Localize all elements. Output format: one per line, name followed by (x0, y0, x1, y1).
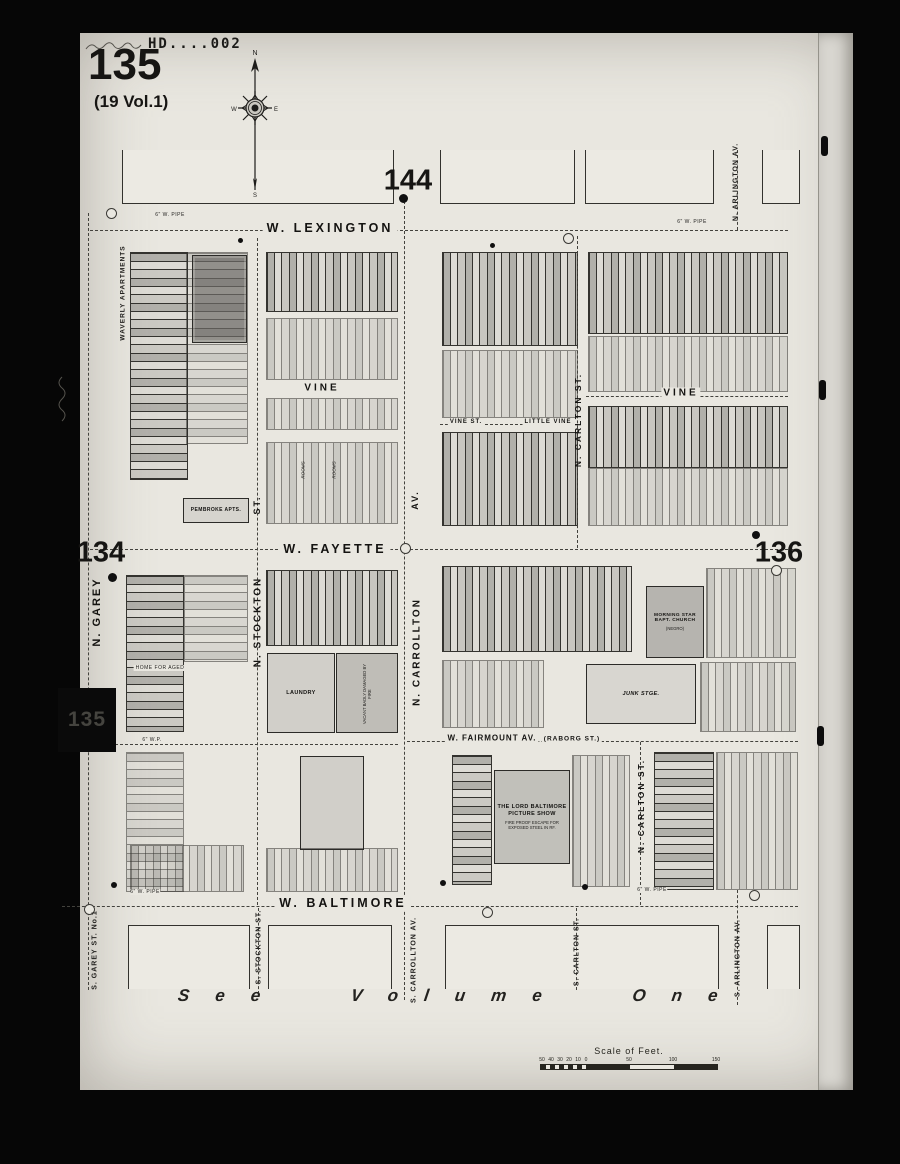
building-row (130, 252, 188, 480)
street-label-w-fairmount: W. FAIRMOUNT AV. (445, 734, 538, 743)
hydrant-dot (111, 882, 117, 888)
building-row (442, 660, 544, 728)
adjacent-plate-top: 144 (384, 165, 432, 198)
see-volume-note: See Volume One (177, 986, 750, 1006)
scale-tick: 50 (626, 1057, 632, 1063)
survey-marker (106, 208, 117, 219)
compass-east-label: E (274, 107, 278, 113)
building-row (442, 566, 632, 652)
building-row (442, 432, 578, 526)
street-label-raborg: (RABORG ST.) (542, 736, 602, 743)
street-label-vine-mid: VINE ST. (448, 419, 484, 425)
compass-rose-icon: N E W S (229, 46, 281, 198)
building-morning-star-church: MORNING STAR BAPT. CHURCH (NEGRO) (646, 586, 704, 658)
water-pipe-note: 6" W. PIPE (155, 212, 185, 218)
building-junk-storage: JUNK STGE. (586, 664, 696, 724)
scale-bar-fine (541, 1065, 586, 1069)
hydrant-dot (490, 243, 495, 248)
street-label-w-lexington: W. LEXINGTON (263, 221, 398, 235)
tab-plate-number: 135 (68, 708, 106, 732)
building-label: LAUNDRY (286, 690, 315, 697)
street-label-n-stockton-abbr: ST. (252, 495, 262, 514)
handwritten-annotation (84, 40, 144, 54)
building-vacant-fire-damaged: VACANT BADLY DAMAGED BY FIRE (336, 653, 398, 733)
scale-tick: 30 (557, 1057, 563, 1063)
building-row (266, 570, 398, 646)
street-label-vine-left: VINE (302, 383, 341, 394)
catalog-stamp: HD....002 (148, 36, 242, 52)
building-label-rooms: ROOMS (301, 461, 306, 478)
binder-mark (821, 136, 828, 156)
compass-north-label: N (252, 50, 257, 57)
building-label-waverly: WAVERLY APARTMENTS (120, 245, 127, 340)
street-label-n-arlington: N. ARLINGTON AV. (733, 143, 740, 221)
building-row (654, 752, 714, 890)
street-label-n-carrollton-abbr: AV. (410, 490, 420, 510)
binder-mark (819, 380, 826, 400)
building-label: BAPT. CHURCH (655, 618, 696, 624)
building-row (266, 442, 398, 524)
street-line-garey (88, 213, 89, 990)
street-label-s-stockton: S. STOCKTON ST. (256, 910, 263, 985)
hydrant-dot (440, 880, 446, 886)
scale-tick: 10 (575, 1057, 581, 1063)
street-line-carrollton (404, 196, 405, 1000)
binder-mark (817, 726, 824, 746)
shaded-building (192, 255, 247, 343)
street-label-w-baltimore: W. BALTIMORE (275, 896, 410, 910)
scale-tick: 20 (566, 1057, 572, 1063)
survey-marker (482, 907, 493, 918)
building-row (184, 575, 248, 662)
street-label-s-carlton: S. CARLTON ST. (574, 918, 581, 986)
scale-tick: 40 (548, 1057, 554, 1063)
water-pipe-note: 6" W. PIPE (130, 889, 160, 895)
scale-ticks: 50 40 30 20 10 0 50 100 150 (540, 1057, 718, 1064)
scale-tick: 50 (539, 1057, 545, 1063)
street-label-n-carlton-upper: N. CARLTON ST. (573, 373, 583, 467)
building-row (572, 755, 630, 887)
building-pembroke-apts: PEMBROKE APTS. (183, 498, 249, 523)
city-block-outline (585, 150, 714, 204)
building-label: (NEGRO) (666, 626, 684, 631)
city-block-outline (445, 925, 719, 989)
water-pipe-note: 6" W. PIPE (637, 887, 667, 893)
building-laundry: LAUNDRY (267, 653, 335, 733)
compass-west-label: W (231, 107, 237, 113)
plate-dot (108, 573, 117, 582)
street-label-s-garey: S. GAREY ST. No.1 (92, 910, 99, 990)
building-row (266, 318, 398, 380)
water-pipe-note: 6" W.P. (142, 737, 161, 743)
scale-of-feet: Scale of Feet. 50 40 30 20 10 0 50 100 1… (540, 1046, 718, 1070)
survey-marker (400, 543, 411, 554)
building-lord-baltimore-theatre: THE LORD BALTIMORE PICTURE SHOW FIRE PRO… (494, 770, 570, 864)
building-label: PEMBROKE APTS. (191, 507, 241, 513)
scale-tick: 100 (669, 1057, 677, 1063)
building-row (266, 848, 398, 892)
building-row (700, 662, 796, 732)
street-line-stockton (257, 238, 258, 905)
street-label-n-stockton: N. STOCKTON (253, 577, 264, 668)
scanned-sanborn-map-page: 135 (19 Vol.1) HD....002 N E (0, 0, 900, 1164)
scale-tick: 0 (585, 1057, 588, 1063)
building-row (442, 252, 578, 346)
building-label-rooms: ROOMS (332, 461, 337, 478)
city-block-outline (128, 925, 250, 989)
page-binding-edge (818, 33, 853, 1090)
adjacent-plate-right: 136 (755, 537, 803, 570)
building-row (452, 755, 492, 885)
street-label-n-garey: N. GAREY (91, 577, 103, 646)
hydrant-dot (238, 238, 243, 243)
survey-marker (563, 233, 574, 244)
compass-south-label: S (253, 193, 257, 198)
water-pipe-note: 6" W. PIPE (677, 219, 707, 225)
adjacent-plate-left: 134 (77, 537, 125, 570)
alley-line (90, 744, 398, 745)
scale-bar-coarse (586, 1065, 718, 1069)
volume-note: (19 Vol.1) (94, 92, 168, 112)
plate-index-tab: 135 (58, 688, 116, 752)
street-line-baltimore (62, 906, 798, 907)
building-row (266, 398, 398, 430)
scale-tick: 150 (712, 1057, 720, 1063)
street-label-little-vine: LITTLE VINE (523, 419, 574, 425)
building-row (706, 568, 796, 658)
large-building (300, 756, 364, 850)
street-label-n-carlton-lower: N. CARLTON ST. (636, 759, 646, 853)
building-row (588, 336, 788, 392)
city-block-outline (440, 150, 575, 204)
street-label-vine-right: VINE (661, 388, 700, 399)
building-label: VACANT BADLY DAMAGED BY FIRE (362, 659, 372, 729)
building-note: FIRE PROOF ESCAPE FOR EXPOSED STEEL IN R… (500, 820, 564, 830)
building-row (266, 252, 398, 312)
building-label: THE LORD BALTIMORE (497, 804, 566, 811)
city-block-outline (268, 925, 392, 989)
building-label: JUNK STGE. (622, 691, 659, 698)
building-row (716, 752, 798, 890)
scale-bar (540, 1064, 718, 1070)
building-label: PICTURE SHOW (508, 811, 556, 818)
street-line-fayette (90, 549, 798, 550)
hydrant-dot (582, 884, 588, 890)
building-row (126, 575, 184, 732)
building-label-home-for-aged: HOME FOR AGED (134, 665, 187, 671)
building-row (588, 406, 788, 468)
street-label-n-carrollton: N. CARROLLTON (412, 598, 423, 706)
building-row (588, 252, 788, 334)
street-line-lexington (90, 230, 788, 231)
city-block-outline (767, 925, 800, 989)
street-label-w-fayette: W. FAYETTE (279, 542, 390, 556)
building-row (130, 845, 244, 892)
building-row (588, 468, 788, 526)
city-block-outline (762, 150, 800, 204)
scale-title: Scale of Feet. (540, 1046, 718, 1056)
handwritten-margin-note (55, 375, 69, 430)
building-row (442, 350, 578, 418)
survey-marker (749, 890, 760, 901)
